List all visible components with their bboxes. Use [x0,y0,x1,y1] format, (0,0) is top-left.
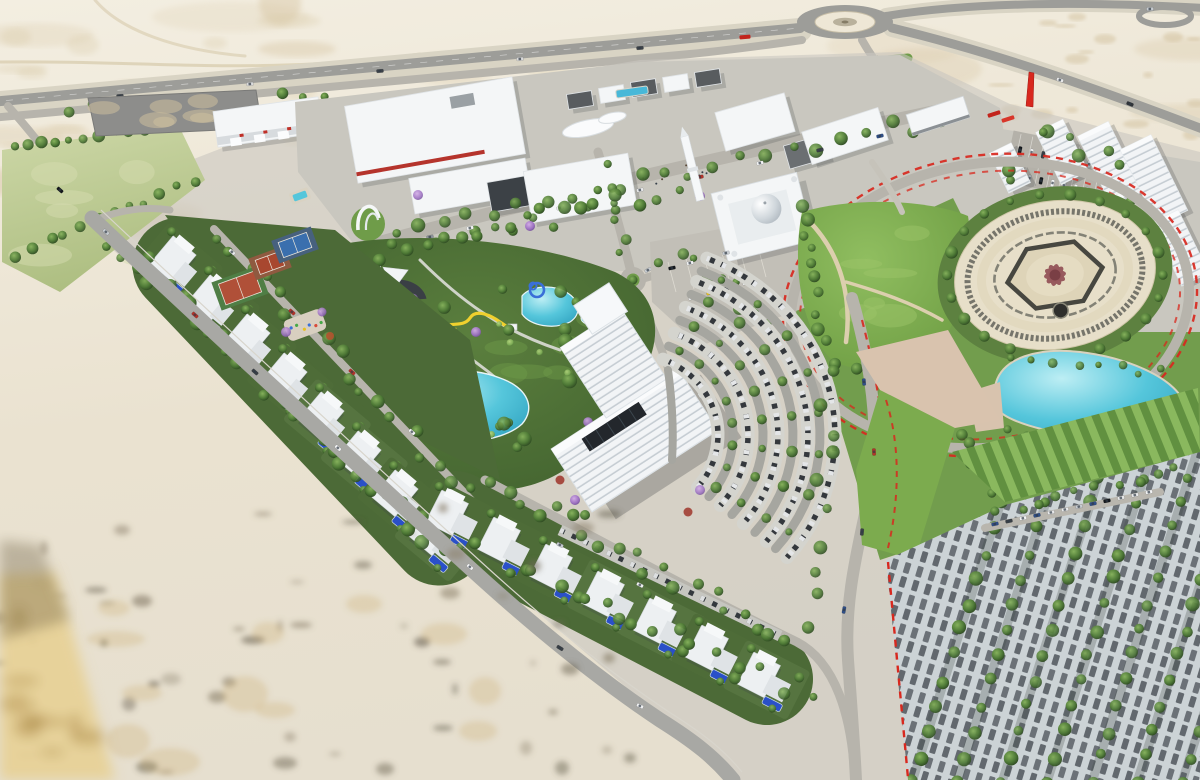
tree [810,473,824,487]
tree [1094,343,1105,354]
desert-shrub [520,741,532,755]
tree [945,246,958,259]
sand-blotch [469,677,501,705]
field-patch [46,203,78,218]
tree [438,301,451,314]
tree [506,568,516,578]
desert-shrub [400,623,408,629]
tree [796,199,809,212]
car [636,46,643,50]
tree [948,646,960,658]
tree [497,417,511,431]
tree [50,138,60,148]
desert-shrub [603,653,615,663]
tree [678,248,689,259]
tree [496,321,502,327]
tree [616,249,623,256]
sand-blotch [459,721,497,741]
tree [153,188,165,200]
tree [567,194,577,204]
tree [1135,371,1142,378]
tree [814,398,828,412]
car [872,448,876,455]
lawn-patch [501,364,553,379]
tree [1182,627,1193,638]
tree [659,563,668,572]
tree [384,412,394,422]
sand-blotch [257,14,321,28]
desert-shrub [602,746,612,754]
tree [1030,676,1042,688]
tree [277,88,289,100]
tree [1153,573,1163,583]
tree [415,453,425,463]
tree [735,151,744,160]
tree [1160,546,1172,558]
sand-blotch [1,28,31,46]
car-glass [248,83,251,86]
warm-speck [0,694,32,714]
tree [580,510,590,520]
tree [749,386,760,397]
tree [212,235,221,244]
tree [1004,751,1019,766]
tree [515,500,525,510]
sand-speck [1039,20,1057,26]
sand-speck [988,83,1014,87]
tree [803,368,812,377]
tree [318,308,327,317]
tree [387,239,398,250]
warm-speck [24,712,46,726]
tree [1014,726,1024,736]
tree [1090,626,1104,640]
tree [727,440,737,450]
tree [1167,521,1177,531]
tree [778,687,790,699]
lawn-patch [863,297,885,309]
sand-blotch [203,37,227,49]
tree [1154,702,1165,713]
tree [1079,520,1091,532]
desert-shrub [290,580,304,584]
tree [611,205,621,215]
tree [947,293,957,303]
tree [734,662,746,674]
tree [610,216,618,224]
tree [806,258,816,268]
tree [957,752,971,766]
tree [1110,700,1122,712]
sand-speck [1078,50,1094,54]
tree [549,223,558,232]
tree [459,207,472,220]
sand-blotch [346,595,382,613]
desert-shrub [452,683,458,695]
sand-speck [1054,24,1076,28]
tree [439,216,451,228]
tree [675,347,683,355]
tree [785,528,792,535]
tree [23,139,34,150]
tree [1142,600,1153,611]
tree [574,201,587,214]
tree [799,231,809,241]
tree [489,210,500,221]
loading-canopy [230,137,242,146]
tree [609,188,622,201]
tree [1035,190,1044,199]
desert-shrub [433,659,451,665]
tree [35,136,47,148]
tree [471,327,481,337]
tree [1046,624,1059,637]
tree [922,725,936,739]
desert-shrub [290,622,312,628]
tree [929,700,942,713]
tree [808,244,816,252]
desert-shrub [572,522,594,534]
tree [814,541,828,555]
tree [826,445,840,459]
car-glass [861,530,864,533]
desert-shrub [561,663,579,675]
tree [580,594,591,605]
sand-blotch [106,724,150,758]
desert-shrub [161,673,181,685]
tree [533,509,546,522]
desert-shrub [114,525,130,535]
tree [603,598,613,608]
desert-shrub [440,587,460,599]
tree [968,726,981,739]
tree [64,107,75,118]
tree [423,240,433,250]
tree [782,330,793,341]
tree [1146,724,1158,736]
tree [1053,600,1065,612]
tree [1154,294,1162,302]
desert-shrub [553,621,565,627]
tree [712,378,719,385]
tree [734,317,746,329]
tree [812,588,824,600]
tree [1002,625,1012,635]
tree [1081,649,1092,660]
tree [1171,647,1184,660]
tree [75,221,86,232]
desert-shrub [530,660,536,666]
tree [536,349,542,355]
tree [716,340,723,347]
masterplan-aerial-view [0,0,1200,780]
tree [1076,361,1085,370]
tree [712,647,722,657]
tree [636,568,648,580]
tree [741,609,751,619]
tree [485,477,496,488]
tree [1095,362,1101,368]
tree [992,648,1005,661]
tree [1140,749,1152,761]
pedestrian [655,183,657,185]
sand-pile [87,101,120,114]
car-glass [873,450,876,453]
tree [1104,146,1115,157]
tree [1070,487,1077,494]
tree [1169,463,1177,471]
desert-shrub [132,595,152,607]
tree [337,345,350,358]
desert-shrub [254,512,272,516]
tree [491,223,499,231]
tree [750,472,760,482]
tree [1050,491,1060,501]
sand-speck [1066,107,1078,113]
tree [281,327,291,337]
tree [1142,227,1150,235]
tree [811,310,820,319]
tree [779,635,791,647]
warm-speck [2,676,40,686]
tree [1025,551,1035,561]
tree [718,276,725,283]
tree [65,137,72,144]
red-door [287,127,291,131]
tree [959,226,969,236]
tree [1121,209,1130,218]
sand-speck [1163,32,1183,42]
tree [401,243,414,256]
tree [815,450,823,458]
tree [952,620,966,634]
tree [1068,547,1082,561]
tree [567,509,579,521]
tree [438,232,449,243]
tree [963,599,977,613]
tree [570,495,580,505]
desert-shrub [447,548,465,560]
tree [636,167,649,180]
sand-speck [1068,13,1086,21]
warm-speck [39,748,65,756]
tree [834,132,848,146]
tree [758,149,772,163]
pedestrian [685,164,687,166]
tree [694,359,704,369]
tree [1107,570,1121,584]
tree [754,300,762,308]
tree [674,623,687,636]
car-glass [863,380,866,383]
car-glass [518,58,521,61]
tree [801,213,815,227]
tree [1157,365,1165,373]
tree [761,628,774,641]
desert-shrub [85,587,107,593]
tree [1076,674,1086,684]
lawn-patch [863,268,917,278]
car [516,57,523,61]
tree [703,297,714,308]
tree [1134,624,1144,634]
tree [1126,646,1138,658]
tree [456,231,468,243]
sand-pile [139,112,177,128]
tree [1153,246,1165,258]
tree [604,160,612,168]
tree [558,201,571,214]
desert-shrub [497,593,509,599]
tree [803,489,814,500]
tree [592,541,604,553]
tree [787,411,797,421]
tree [737,498,746,507]
desert-shrub [548,709,558,715]
tree [1034,500,1043,509]
tree [392,229,401,238]
roundabout-monument [842,21,849,24]
tree [1006,198,1014,206]
tree [759,445,766,452]
tree [707,162,719,174]
tree [58,231,67,240]
car-glass [1148,8,1151,10]
tree [534,203,545,214]
tree [1005,343,1016,354]
tree [810,567,821,578]
tree [614,543,626,555]
tree [1176,497,1186,507]
tree [722,397,731,406]
tree [594,186,603,195]
tree [510,198,521,209]
tree [1119,361,1128,370]
tree [1136,477,1146,487]
pedestrian [706,172,708,174]
tree [498,285,507,294]
tree [761,513,771,523]
tree [976,703,986,713]
tree [1158,270,1167,279]
lawn-patch [485,340,528,355]
tree [958,313,970,325]
desert-shrub [342,520,364,524]
tree [435,461,446,472]
desert-shrub [527,560,541,572]
tree [1058,722,1072,736]
tree [1095,196,1105,206]
tree [1116,481,1124,489]
sand-blotch [98,600,130,616]
desert-shrub [354,561,372,569]
tree [711,482,722,493]
tree [411,218,425,232]
car [246,82,253,86]
tree [937,677,950,690]
tree [647,626,658,637]
tree [1066,700,1077,711]
tree [684,508,693,517]
aerial-render [0,0,1200,780]
tree [1021,699,1031,709]
tree [723,464,731,472]
sand-speck [1123,120,1149,128]
tree [1120,331,1131,342]
tree [1003,425,1011,433]
tree [1066,133,1074,141]
tree [985,673,997,685]
tree [979,331,990,342]
tree [690,255,697,262]
tree [1048,752,1062,766]
sand-blotch [252,622,284,644]
sand-blotch [255,702,295,718]
tree [654,258,663,267]
pedestrian [701,171,703,173]
tree [777,376,787,386]
tree [1185,597,1200,612]
tree [554,285,567,298]
tree [1120,672,1132,684]
tree [1140,313,1151,324]
field-patch [35,190,93,205]
tree [786,446,798,458]
tree [1048,358,1058,368]
sand-blotch [67,35,99,55]
tree [1089,481,1099,491]
desert-shrub [284,732,296,742]
tree [695,485,705,495]
tree [634,199,647,212]
tree [471,231,482,242]
tree [79,135,88,144]
tree [666,581,680,595]
parking-entry-lane [668,370,673,460]
desert-shrub [624,753,636,763]
lawn-patch [840,259,882,269]
arch-mound [351,207,385,241]
field-patch [119,160,155,184]
field-patch [31,162,78,186]
tree [689,321,700,332]
tree [1062,572,1075,585]
tree [1100,598,1110,608]
tree [823,504,832,513]
tree [683,638,695,650]
sand-blotch [421,623,467,645]
tree [10,252,21,263]
loading-canopy [254,134,266,143]
desert-shrub [555,761,569,775]
tree [1006,598,1019,611]
tree [27,243,39,255]
tree [11,142,19,150]
sand-blotch [258,41,336,57]
tree [811,323,825,337]
desert-shrub [597,510,621,518]
tree [652,195,662,205]
tree [354,388,362,396]
tree [1039,128,1048,137]
sand-pile [188,94,218,108]
tree [828,365,840,377]
tree [735,360,745,370]
sand-blotch [87,631,145,647]
tree [1154,469,1163,478]
tree [990,507,999,516]
tree [851,363,863,375]
